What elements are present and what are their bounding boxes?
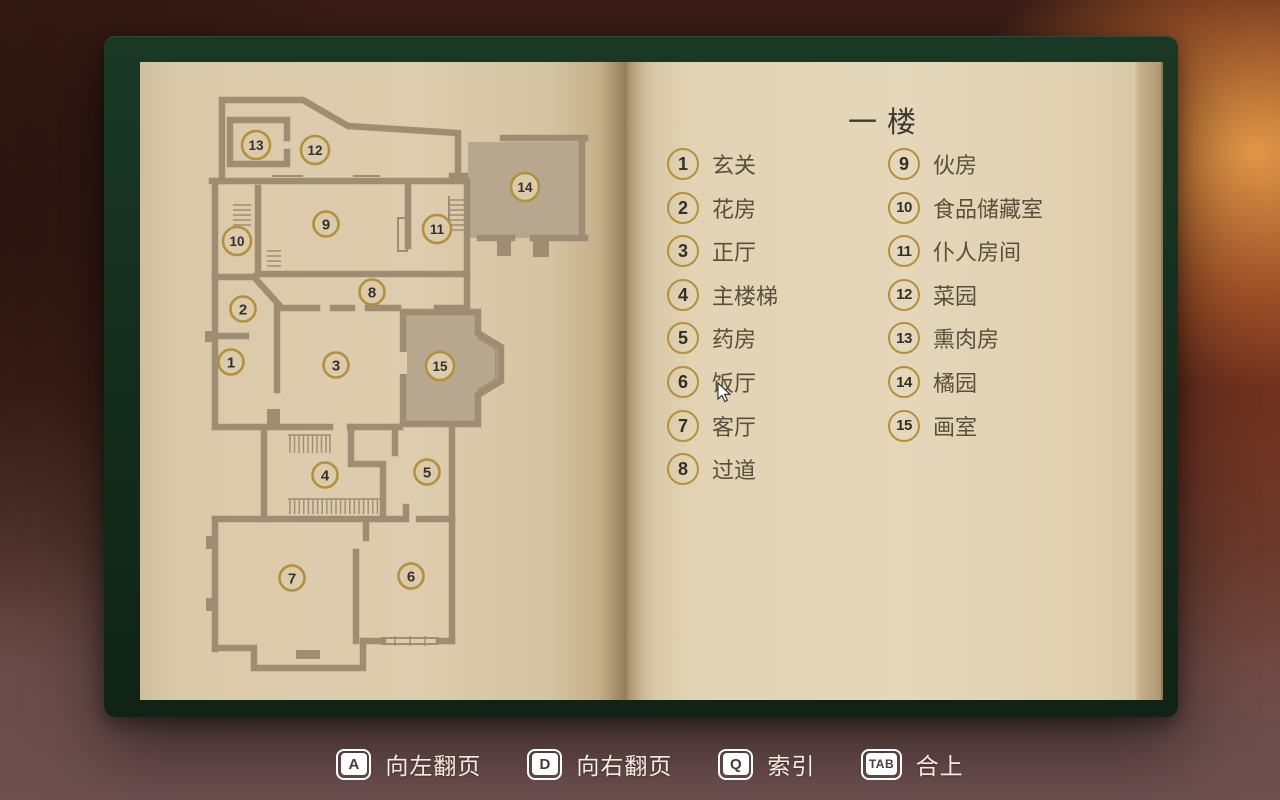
legend-item-6: 6饭厅 [667,366,756,398]
page-title: 一楼 [812,99,962,141]
legend-room-label: 药房 [712,322,756,354]
map-marker-number: 1 [227,354,235,371]
keycap-letter: A [341,753,367,775]
map-marker-number: 13 [248,138,264,153]
legend-room-label: 客厅 [712,410,756,442]
legend-room-label: 过道 [712,453,756,485]
hotkey-page-right[interactable]: D向右翻页 [527,747,672,781]
legend-number-badge: 3 [667,235,699,267]
keycap-letter: TAB [866,753,897,775]
map-marker-number: 8 [368,284,376,301]
legend-number-badge: 8 [667,453,699,485]
key-d-icon: D [527,749,562,780]
hotkey-label: 向右翻页 [576,747,672,781]
hotkey-index[interactable]: Q索引 [718,747,815,781]
legend-item-15: 15画室 [888,410,977,442]
legend-item-12: 12菜园 [888,279,977,311]
hotkey-label: 合上 [916,747,964,781]
legend-number-badge: 6 [667,366,699,398]
legend-item-8: 8过道 [667,453,756,485]
legend-number-badge: 14 [888,366,920,398]
legend-room-label: 仆人房间 [933,235,1021,267]
map-marker-number: 9 [322,216,330,233]
legend-room-label: 橘园 [933,366,977,398]
map-marker-number: 15 [432,359,448,374]
legend-item-13: 13熏肉房 [888,322,999,354]
map-marker-number: 12 [307,143,322,158]
hotkey-label: 索引 [767,747,815,781]
legend-room-label: 主楼梯 [712,279,778,311]
map-marker-number: 14 [517,180,533,195]
keycap-letter: D [532,753,558,775]
legend-item-4: 4主楼梯 [667,279,778,311]
legend-number-badge: 4 [667,279,699,311]
hotkey-page-left[interactable]: A向左翻页 [336,747,481,781]
page-edge-stack [1133,62,1163,700]
map-marker-number: 2 [239,301,247,318]
game-screen: 123456789101112131415 一楼 1玄关2花房3正厅4主楼梯5药… [0,0,1280,800]
legend-room-label: 正厅 [712,235,756,267]
legend-number-badge: 13 [888,322,920,354]
legend-item-11: 11仆人房间 [888,235,1021,267]
legend-room-label: 熏肉房 [933,322,999,354]
legend-item-3: 3正厅 [667,235,756,267]
hotkey-close[interactable]: TAB合上 [861,747,963,781]
legend-item-2: 2花房 [667,192,756,224]
legend-number-badge: 5 [667,322,699,354]
map-marker-number: 4 [321,467,330,484]
keycap-letter: Q [723,753,749,775]
legend-number-badge: 9 [888,148,920,180]
floorplan-map: 123456789101112131415 [140,62,627,700]
legend-room-label: 饭厅 [712,366,756,398]
legend-room-label: 伙房 [933,148,977,180]
legend-item-10: 10食品储藏室 [888,192,1043,224]
legend-item-9: 9伙房 [888,148,977,180]
map-marker-number: 11 [430,222,445,237]
legend-number-badge: 1 [667,148,699,180]
legend-room-label: 食品储藏室 [933,192,1043,224]
legend-number-badge: 2 [667,192,699,224]
hotkey-label: 向左翻页 [385,747,481,781]
hotkey-bar: A向左翻页D向右翻页Q索引TAB合上 [10,747,1280,781]
map-marker-number: 10 [229,234,244,249]
legend-room-label: 玄关 [712,148,756,180]
map-marker-number: 7 [288,570,296,587]
legend-number-badge: 12 [888,279,920,311]
legend-item-7: 7客厅 [667,410,756,442]
legend-room-label: 画室 [933,410,977,442]
key-q-icon: Q [718,749,753,780]
key-a-icon: A [336,749,371,780]
map-marker-number: 6 [407,568,415,585]
legend-item-5: 5药房 [667,322,756,354]
legend-room-label: 花房 [712,192,756,224]
map-marker-number: 3 [332,357,340,374]
key-tab-icon: TAB [861,749,901,780]
legend-item-1: 1玄关 [667,148,756,180]
legend-room-label: 菜园 [933,279,977,311]
legend-number-badge: 11 [888,235,920,267]
legend-number-badge: 15 [888,410,920,442]
legend-item-14: 14橘园 [888,366,977,398]
map-marker-number: 5 [423,464,431,481]
legend-number-badge: 10 [888,192,920,224]
legend-number-badge: 7 [667,410,699,442]
